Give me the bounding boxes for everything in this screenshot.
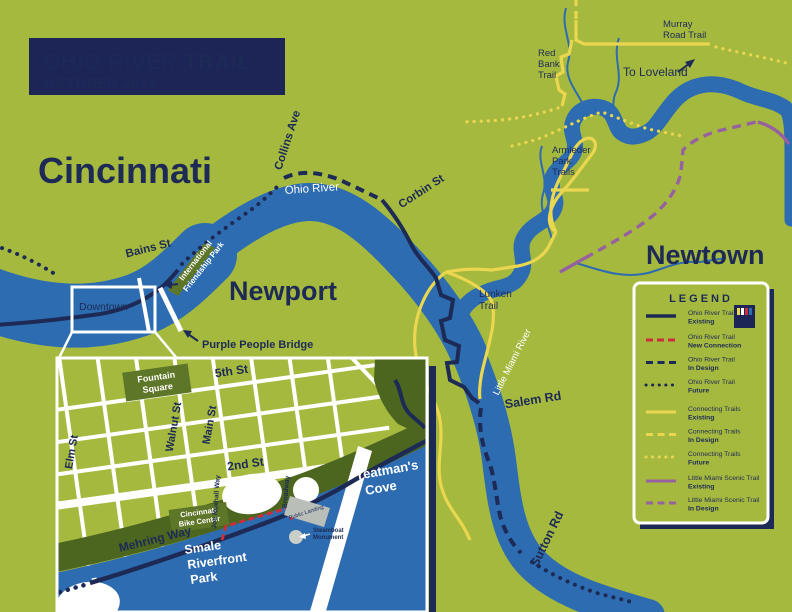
svg-text:In Design: In Design (688, 506, 719, 513)
title-line1-bold: TRAIL (185, 51, 252, 74)
svg-text:Steamboat: Steamboat (313, 528, 344, 534)
svg-text:Park: Park (552, 156, 572, 167)
title-line1-regular: OHIO RIVER (44, 51, 185, 74)
svg-text:Road Trail: Road Trail (663, 30, 706, 41)
svg-text:Lunken: Lunken (479, 289, 512, 300)
legend-title: LEGEND (669, 293, 733, 305)
map-canvas: Downtown Cincinnati Newport Newtown Ohio… (0, 0, 792, 612)
svg-text:Existing: Existing (688, 319, 714, 326)
svg-text:Murray: Murray (663, 19, 693, 30)
svg-text:Little Miami Scenic Trail: Little Miami Scenic Trail (688, 475, 760, 482)
svg-text:TRAIL: TRAIL (738, 322, 752, 327)
svg-text:In Design: In Design (688, 437, 719, 444)
ohio-river-trail-map: Downtown Cincinnati Newport Newtown Ohio… (0, 0, 792, 612)
steamboat-monument-label: Steamboat Monument (313, 528, 344, 541)
svg-text:Existing: Existing (688, 415, 714, 422)
svg-text:Future: Future (688, 388, 709, 395)
svg-text:Existing: Existing (688, 484, 714, 491)
svg-text:Trail: Trail (479, 301, 498, 312)
newport-label: Newport (229, 276, 337, 306)
inset-shadow (429, 366, 436, 612)
legend: LEGEND Ohio River TrailExisting Ohio Riv… (634, 283, 774, 529)
svg-text:Ohio River Trail: Ohio River Trail (688, 334, 735, 341)
newtown-label: Newtown (646, 240, 765, 270)
svg-text:New Connection: New Connection (688, 343, 741, 350)
svg-text:Red: Red (538, 48, 555, 59)
title-line2: OCTOBER 2013 (44, 76, 157, 91)
downtown-label: Downtown (79, 301, 128, 313)
svg-text:Ohio River Trail: Ohio River Trail (688, 379, 735, 386)
ohio-river-trail-logo-icon: OHIO RIVER TRAIL (734, 305, 755, 328)
svg-text:Connecting Trails: Connecting Trails (688, 429, 741, 436)
svg-text:In Design: In Design (688, 365, 719, 372)
svg-text:Little Miami Scenic Trail: Little Miami Scenic Trail (688, 497, 760, 504)
svg-text:Trails: Trails (552, 167, 575, 178)
svg-text:Future: Future (688, 460, 709, 467)
cincinnati-label: Cincinnati (38, 150, 212, 191)
svg-text:Trail: Trail (538, 70, 556, 81)
svg-text:Monument: Monument (313, 535, 343, 541)
svg-text:Ohio River Trail: Ohio River Trail (688, 310, 735, 317)
purple-people-bridge-label: Purple People Bridge (202, 339, 313, 351)
svg-text:Armleder: Armleder (552, 145, 591, 156)
svg-text:Bank: Bank (538, 59, 560, 70)
svg-text:OHIO RIVER TRAIL: OHIO RIVER TRAIL (44, 51, 251, 74)
svg-text:Connecting Trails: Connecting Trails (688, 406, 741, 413)
svg-text:Ohio River Trail: Ohio River Trail (688, 357, 735, 364)
svg-text:Connecting Trails: Connecting Trails (688, 451, 741, 458)
title-box: OHIO RIVER TRAIL OCTOBER 2013 (29, 38, 285, 95)
svg-text:OHIO RIVER: OHIO RIVER (735, 317, 754, 321)
